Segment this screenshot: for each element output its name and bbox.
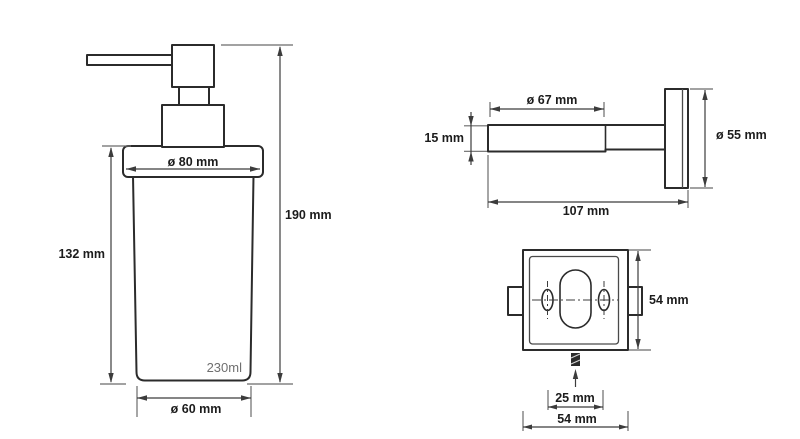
plate-left-tab (508, 287, 524, 315)
dim-label-body-height: 132 mm (58, 247, 105, 261)
pump-collar (162, 105, 224, 147)
wall-plate-front-view: 54 mm 25 mm 54 mm (508, 250, 689, 431)
dispenser-view: ø 80 mm 190 mm 132 mm ø 60 mm (58, 45, 331, 417)
dim-plate-width: 54 mm (523, 411, 628, 431)
mount-backplate (665, 89, 688, 188)
up-arrow-icon (573, 369, 578, 379)
set-screw-indicator (571, 353, 580, 387)
dim-mount-ring-diameter: ø 67 mm (490, 93, 604, 117)
pump-neck (179, 87, 209, 105)
dim-label-bottom-diameter: ø 60 mm (171, 402, 222, 416)
dim-plate-hole-spacing: 25 mm (548, 390, 603, 410)
dim-label-hole-spacing: 25 mm (555, 391, 595, 405)
dim-label-total-height: 190 mm (285, 208, 332, 222)
dim-plate-height: 54 mm (629, 250, 689, 350)
dim-label-ring-diameter: ø 67 mm (527, 93, 578, 107)
technical-drawing-canvas: ø 80 mm 190 mm 132 mm ø 60 mm (0, 0, 800, 439)
dim-mount-plate-diameter: ø 55 mm (690, 89, 767, 188)
dim-label-plate-diameter: ø 55 mm (716, 128, 767, 142)
dim-label-plate-width: 54 mm (557, 412, 597, 426)
technical-drawing-page: ø 80 mm 190 mm 132 mm ø 60 mm (0, 0, 800, 439)
dim-mount-arm-height: 15 mm (424, 112, 487, 165)
dim-mount-total-length: 107 mm (488, 155, 688, 218)
dim-label-arm-height: 15 mm (424, 131, 464, 145)
bottle-body (133, 176, 254, 381)
dim-label-total-length: 107 mm (563, 204, 610, 218)
dim-label-plate-height: 54 mm (649, 293, 689, 307)
wall-mount-side-view: ø 67 mm 15 mm ø 55 mm 107 mm (424, 89, 766, 218)
dim-dispenser-body-height: 132 mm (58, 146, 131, 384)
mount-arm (488, 125, 666, 152)
pump-head (172, 45, 214, 87)
pump-spout (87, 55, 172, 65)
capacity-label: 230ml (207, 360, 243, 375)
dim-label-top-diameter: ø 80 mm (168, 155, 219, 169)
dim-dispenser-bottom-diameter: ø 60 mm (137, 386, 251, 417)
